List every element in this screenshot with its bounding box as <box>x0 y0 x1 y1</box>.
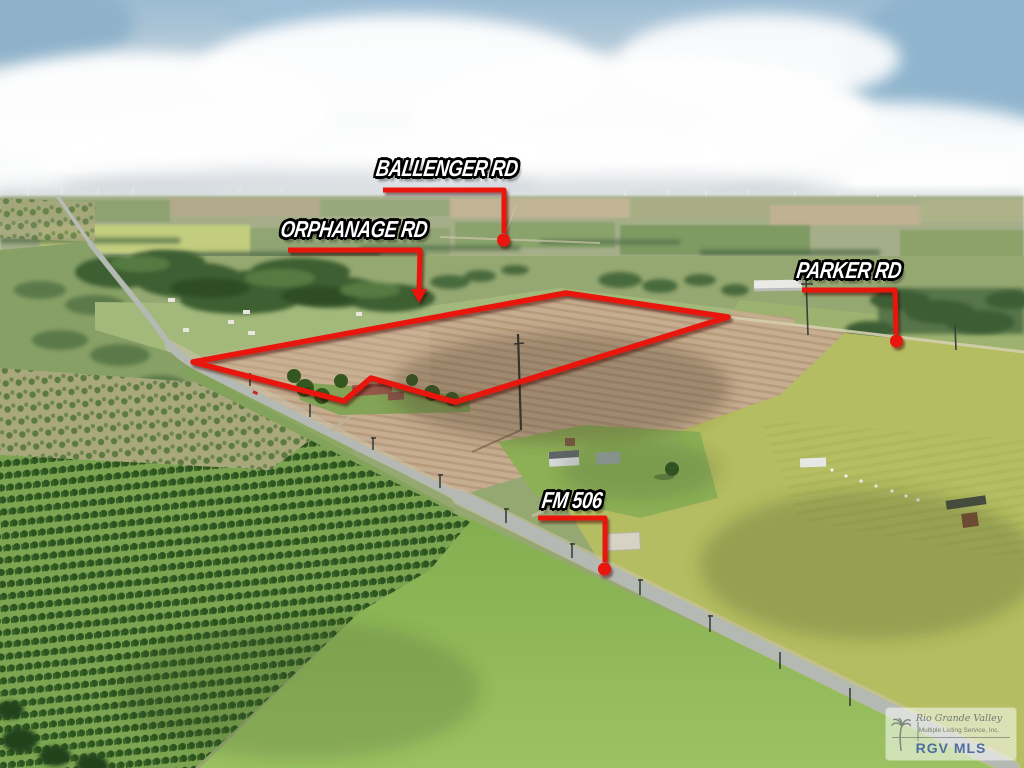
aerial-listing-photo: BALLENGER RD ORPHANAGE RD PARKER RD FM 5… <box>0 0 1024 768</box>
palm-tree-icon <box>891 717 911 753</box>
orphanage-rd-label: ORPHANAGE RD <box>279 218 429 241</box>
ballenger-dot <box>497 234 510 247</box>
ballenger-rd-label: BALLENGER RD <box>375 157 520 180</box>
aerial-photo-scene <box>0 0 1024 768</box>
watermark-brand-sub: Multiple Listing Service, Inc. <box>908 727 1010 734</box>
parker-dot <box>890 335 903 348</box>
rgv-mls-watermark: Rio Grande Valley Multiple Listing Servi… <box>886 708 1016 760</box>
fm506-dot <box>598 563 611 576</box>
watermark-brand-script: Rio Grande Valley <box>908 714 1010 724</box>
concrete-pad <box>606 532 641 551</box>
parker-rd-label: PARKER RD <box>795 259 903 282</box>
far-grove <box>0 198 95 242</box>
fm506-label: FM 506 <box>540 489 603 512</box>
sky <box>0 0 1024 218</box>
